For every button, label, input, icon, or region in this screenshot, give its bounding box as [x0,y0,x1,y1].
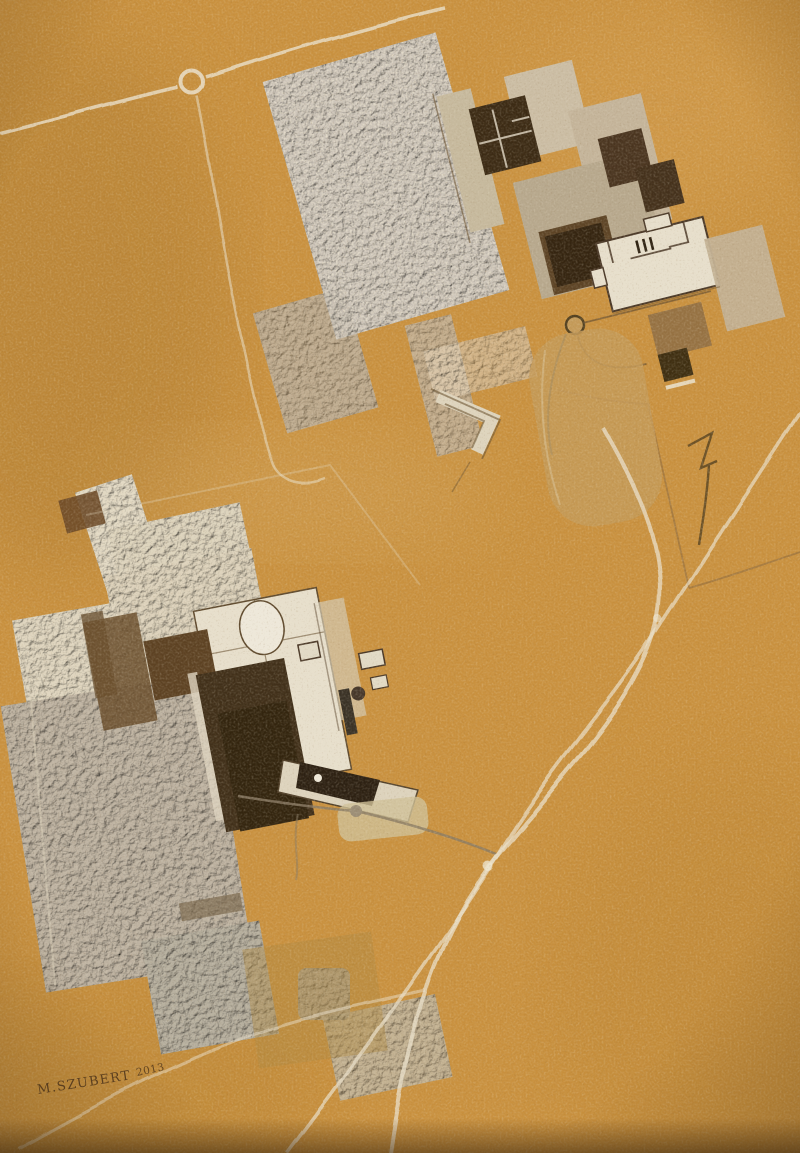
bottom-edge-shadow [0,1118,800,1153]
painting-photo: M.SZUBERT 2013 [0,0,800,1153]
vignette [0,0,800,1153]
